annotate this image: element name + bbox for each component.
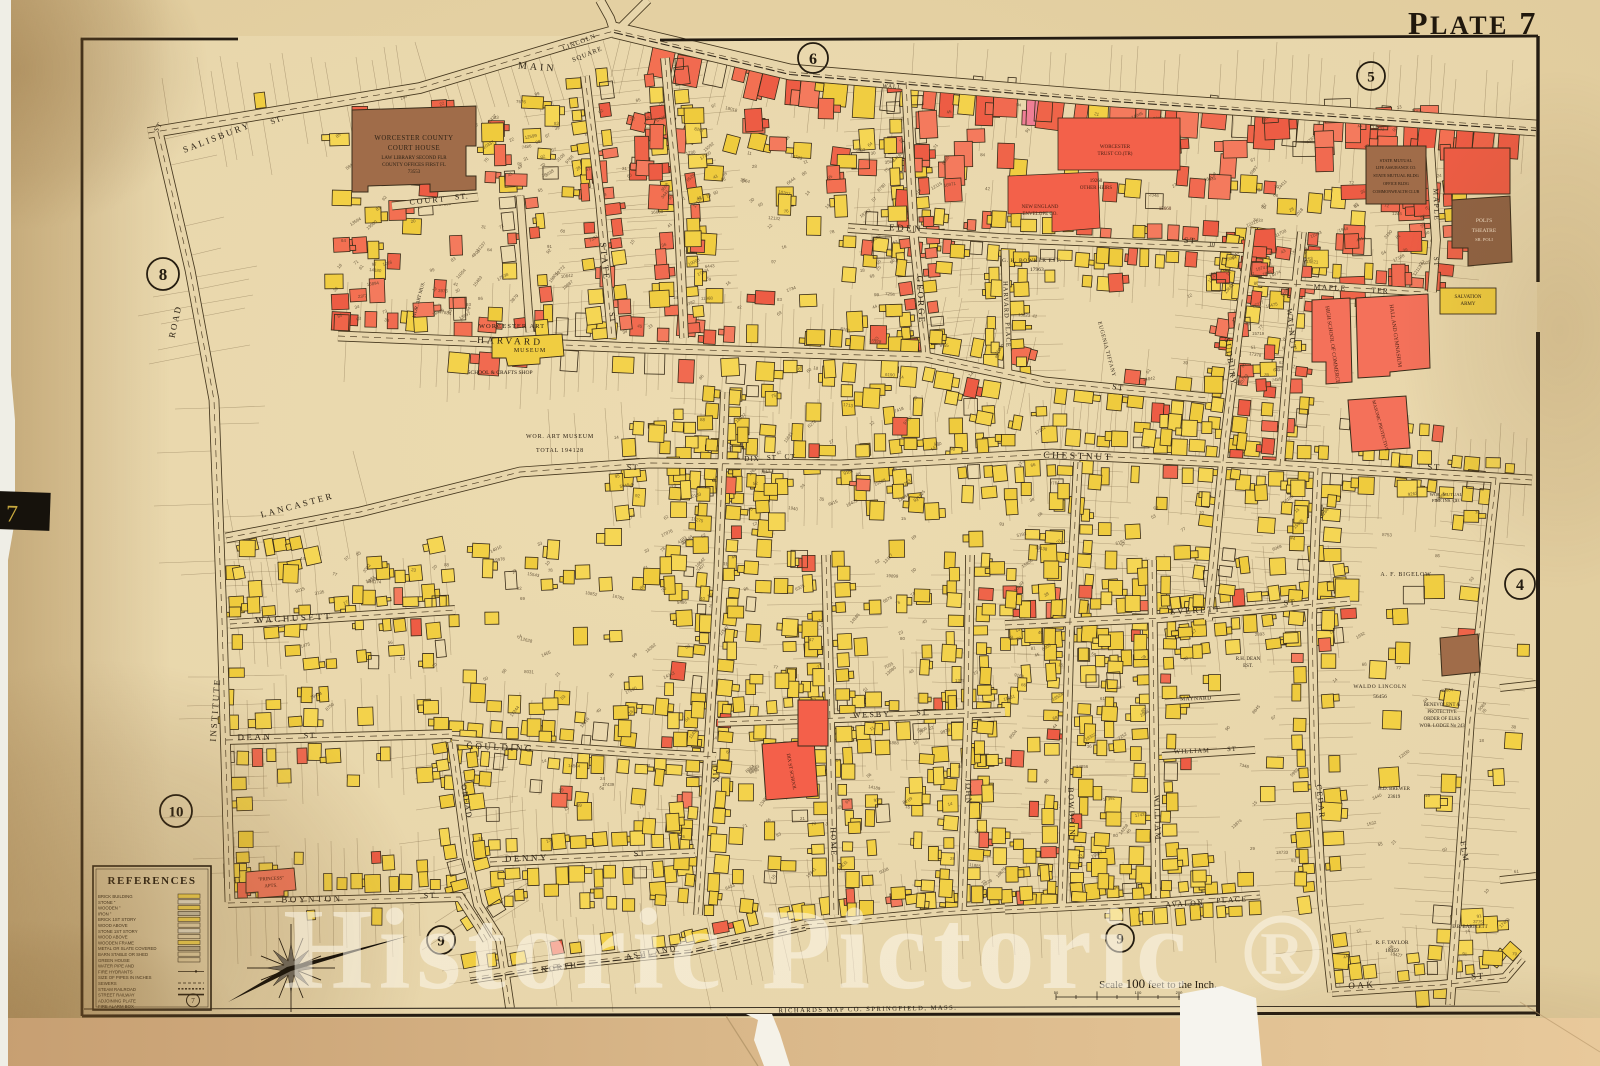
svg-text:14564: 14564 bbox=[568, 763, 581, 769]
svg-text:G. H. BOWKER EST.: G. H. BOWKER EST. bbox=[1002, 258, 1062, 264]
svg-text:22: 22 bbox=[630, 116, 636, 121]
svg-text:23: 23 bbox=[358, 294, 364, 299]
svg-text:WOR. LODGE No 243: WOR. LODGE No 243 bbox=[1419, 724, 1465, 729]
svg-text:42: 42 bbox=[985, 186, 991, 191]
svg-text:3976: 3976 bbox=[438, 288, 449, 294]
svg-text:15660: 15660 bbox=[1159, 207, 1172, 212]
svg-text:ST: ST bbox=[916, 708, 928, 717]
svg-text:91: 91 bbox=[547, 244, 553, 249]
svg-text:19260: 19260 bbox=[1090, 179, 1103, 184]
svg-text:WESBY: WESBY bbox=[853, 709, 891, 719]
svg-text:80: 80 bbox=[1113, 833, 1119, 838]
svg-text:64: 64 bbox=[341, 238, 346, 243]
svg-text:83: 83 bbox=[777, 297, 782, 302]
svg-text:ORDER OF ELKS: ORDER OF ELKS bbox=[1424, 717, 1461, 722]
svg-text:6: 6 bbox=[809, 51, 817, 68]
svg-text:82: 82 bbox=[517, 586, 523, 591]
svg-text:73553: 73553 bbox=[408, 170, 421, 175]
svg-text:EST.: EST. bbox=[1243, 664, 1253, 669]
svg-text:8753: 8753 bbox=[1382, 532, 1393, 538]
svg-text:A. F. BIGELOW: A. F. BIGELOW bbox=[1380, 572, 1431, 578]
svg-text:3775: 3775 bbox=[1473, 919, 1484, 925]
svg-text:1888: 1888 bbox=[889, 740, 900, 746]
svg-text:ST: ST bbox=[607, 312, 617, 324]
svg-text:WILLIAM: WILLIAM bbox=[1174, 747, 1210, 755]
svg-text:31: 31 bbox=[622, 166, 628, 171]
svg-text:R.H. DEAN: R.H. DEAN bbox=[1236, 657, 1261, 662]
svg-text:COMMONWEALTH CLUB: COMMONWEALTH CLUB bbox=[1373, 189, 1420, 194]
svg-text:24: 24 bbox=[600, 776, 605, 781]
svg-text:DIX: DIX bbox=[744, 455, 759, 463]
svg-text:52: 52 bbox=[753, 481, 759, 486]
svg-text:16174: 16174 bbox=[369, 579, 382, 584]
svg-text:OTHER HEIRS: OTHER HEIRS bbox=[1080, 186, 1113, 191]
svg-text:69: 69 bbox=[520, 596, 525, 601]
svg-text:WILLIAM: WILLIAM bbox=[1152, 795, 1163, 841]
svg-text:93: 93 bbox=[1291, 858, 1297, 863]
svg-text:ST: ST bbox=[1283, 598, 1296, 608]
svg-text:R. F. TAYLOR: R. F. TAYLOR bbox=[1375, 940, 1408, 946]
svg-text:WALDO LINCOLN: WALDO LINCOLN bbox=[1353, 684, 1406, 690]
svg-text:HARVARD: HARVARD bbox=[1001, 281, 1009, 319]
svg-text:CT: CT bbox=[785, 453, 796, 461]
svg-text:18733: 18733 bbox=[1276, 850, 1289, 855]
svg-text:19899: 19899 bbox=[886, 573, 899, 579]
svg-text:WORCESTER ART: WORCESTER ART bbox=[479, 323, 545, 330]
svg-text:11968: 11968 bbox=[701, 296, 714, 301]
svg-text:ST: ST bbox=[1112, 382, 1126, 393]
svg-text:18: 18 bbox=[1479, 738, 1484, 743]
svg-text:11: 11 bbox=[646, 763, 651, 768]
svg-text:PLACE: PLACE bbox=[1004, 322, 1012, 348]
svg-text:TER: TER bbox=[1371, 286, 1389, 296]
svg-text:40: 40 bbox=[700, 596, 705, 601]
svg-text:EDEN: EDEN bbox=[889, 222, 923, 234]
svg-text:BENEVOLENT &: BENEVOLENT & bbox=[1424, 703, 1461, 708]
svg-text:ENVELOPE CO.: ENVELOPE CO. bbox=[1022, 212, 1057, 217]
svg-text:PLACE: PLACE bbox=[1216, 894, 1248, 905]
svg-text:JOHN: JOHN bbox=[964, 779, 974, 806]
svg-text:HOME: HOME bbox=[828, 827, 838, 857]
svg-text:SCHOOL & CRAFTS SHOP: SCHOOL & CRAFTS SHOP bbox=[467, 370, 532, 376]
svg-text:56456: 56456 bbox=[1373, 694, 1387, 700]
svg-text:7676: 7676 bbox=[516, 99, 526, 104]
svg-text:2893: 2893 bbox=[1255, 631, 1266, 637]
svg-text:15: 15 bbox=[1425, 793, 1430, 798]
svg-text:ST.: ST. bbox=[455, 191, 469, 201]
svg-text:61: 61 bbox=[1514, 869, 1520, 874]
svg-text:10: 10 bbox=[1245, 321, 1251, 326]
svg-text:5486: 5486 bbox=[677, 600, 687, 605]
svg-text:MUSEUM: MUSEUM bbox=[514, 348, 546, 354]
svg-text:15719: 15719 bbox=[1252, 331, 1265, 336]
svg-text:TRUST CO.(TR): TRUST CO.(TR) bbox=[1098, 152, 1133, 157]
svg-text:88: 88 bbox=[700, 417, 706, 422]
svg-text:18: 18 bbox=[478, 836, 484, 841]
svg-text:Historic Pictoric: Historic Pictoric bbox=[283, 886, 1193, 1013]
svg-text:6443: 6443 bbox=[705, 263, 716, 269]
svg-text:28: 28 bbox=[950, 856, 955, 861]
svg-text:10: 10 bbox=[1209, 242, 1215, 248]
svg-text:55: 55 bbox=[944, 343, 950, 348]
svg-text:23619: 23619 bbox=[1388, 795, 1401, 800]
svg-text:TOTAL 194128: TOTAL 194128 bbox=[536, 448, 584, 454]
svg-text:70: 70 bbox=[1199, 510, 1205, 515]
svg-text:ST: ST bbox=[627, 463, 639, 472]
svg-text:ST: ST bbox=[767, 454, 777, 462]
svg-text:18459: 18459 bbox=[1385, 948, 1399, 954]
svg-text:LAW LIBRARY SECOND FLR: LAW LIBRARY SECOND FLR bbox=[381, 156, 447, 161]
svg-text:8031: 8031 bbox=[524, 669, 535, 675]
svg-text:COURT HOUSE: COURT HOUSE bbox=[388, 145, 440, 152]
svg-text:22: 22 bbox=[400, 656, 405, 661]
svg-text:18684: 18684 bbox=[1441, 687, 1454, 693]
svg-text:17963: 17963 bbox=[1030, 267, 1044, 273]
svg-text:PROTECTIVE: PROTECTIVE bbox=[1427, 710, 1456, 715]
svg-text:PLATE 7: PLATE 7 bbox=[1408, 5, 1538, 41]
svg-text:ST: ST bbox=[634, 849, 647, 858]
svg-text:WORCESTER: WORCESTER bbox=[1100, 145, 1131, 150]
svg-text:26: 26 bbox=[680, 834, 686, 839]
svg-text:NEW ENGLAND: NEW ENGLAND bbox=[1022, 205, 1059, 210]
svg-text:61: 61 bbox=[1100, 696, 1105, 701]
svg-text:COUNTY OFFICES FIRST FL: COUNTY OFFICES FIRST FL bbox=[382, 163, 446, 168]
svg-text:ST: ST bbox=[1184, 236, 1197, 246]
svg-text:ST: ST bbox=[1227, 746, 1237, 753]
svg-text:H.D. BREWER: H.D. BREWER bbox=[1378, 787, 1410, 792]
svg-text:14856: 14856 bbox=[1076, 764, 1089, 769]
svg-text:LIFE ASSURANCE CO.: LIFE ASSURANCE CO. bbox=[1376, 165, 1417, 170]
svg-text:29: 29 bbox=[1250, 846, 1255, 851]
svg-text:99: 99 bbox=[874, 292, 880, 297]
svg-text:WORCESTER COUNTY: WORCESTER COUNTY bbox=[374, 135, 453, 142]
svg-text:MAYNARD: MAYNARD bbox=[1180, 695, 1212, 702]
svg-text:1246: 1246 bbox=[1392, 211, 1402, 216]
svg-text:14: 14 bbox=[614, 435, 620, 440]
svg-text:6190: 6190 bbox=[885, 372, 896, 378]
svg-text:21: 21 bbox=[800, 816, 805, 821]
svg-text:44: 44 bbox=[300, 556, 305, 561]
svg-text:STATE MUTUAL: STATE MUTUAL bbox=[1380, 158, 1413, 163]
svg-text:40: 40 bbox=[1038, 630, 1044, 635]
svg-text:72: 72 bbox=[1349, 180, 1355, 185]
svg-text:DIX: DIX bbox=[710, 765, 720, 784]
svg-text:83: 83 bbox=[494, 115, 500, 120]
svg-text:WOR. ART MUSEUM: WOR. ART MUSEUM bbox=[526, 434, 594, 440]
svg-text:69: 69 bbox=[577, 803, 583, 808]
svg-text:MAPLE: MAPLE bbox=[1313, 282, 1346, 293]
svg-text:E.B. BARTLETT: E.B. BARTLETT bbox=[1452, 925, 1487, 930]
svg-text:OFFICE BLDG: OFFICE BLDG bbox=[1383, 181, 1409, 186]
svg-text:86: 86 bbox=[478, 296, 484, 301]
svg-text:15: 15 bbox=[901, 516, 907, 521]
svg-text:80: 80 bbox=[900, 636, 905, 641]
svg-text:28: 28 bbox=[752, 164, 758, 169]
svg-text:DENNY: DENNY bbox=[505, 852, 549, 864]
svg-text:BOWDOIN: BOWDOIN bbox=[1066, 787, 1077, 836]
svg-text:86: 86 bbox=[1435, 553, 1441, 558]
svg-text:R: R bbox=[1260, 921, 1304, 987]
svg-text:7: 7 bbox=[5, 501, 18, 527]
svg-text:STATE MUTUAL BLDG: STATE MUTUAL BLDG bbox=[1373, 173, 1419, 178]
svg-text:70: 70 bbox=[1274, 184, 1280, 189]
svg-text:5: 5 bbox=[1367, 69, 1375, 85]
svg-text:56: 56 bbox=[388, 640, 394, 645]
